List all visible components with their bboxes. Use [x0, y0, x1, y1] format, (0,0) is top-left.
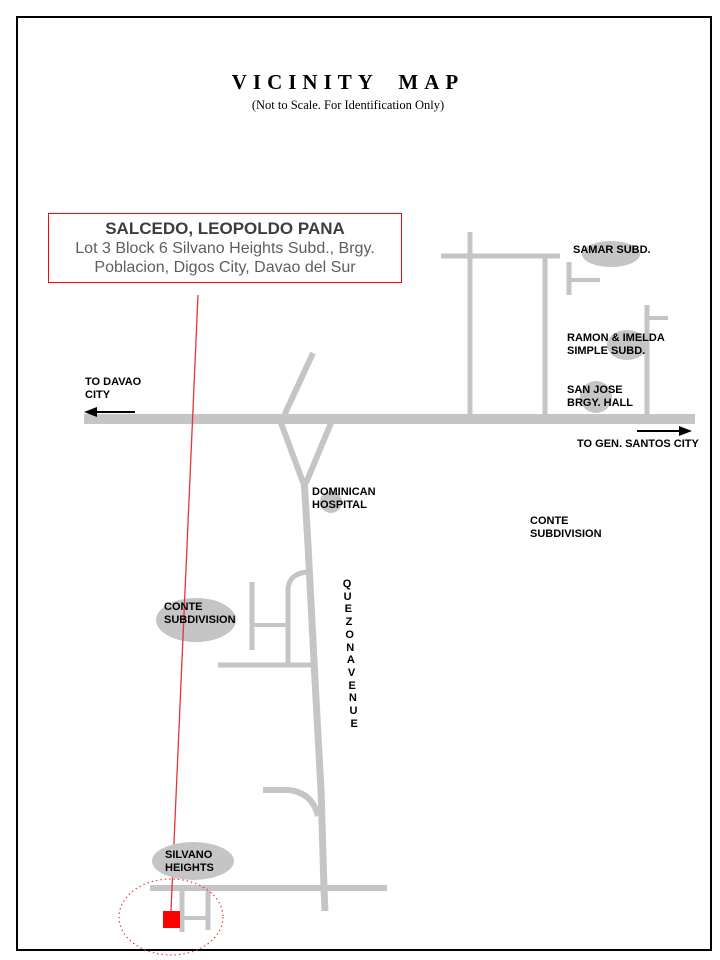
street-letter: Z — [346, 617, 353, 628]
label-to-davao-city: TO DAVAO CITY — [85, 376, 141, 401]
label-ramon-imelda: RAMON & IMELDA SIMPLE SUBD. — [567, 332, 665, 357]
address-line-1: Lot 3 Block 6 Silvano Heights Subd., Brg… — [49, 239, 401, 258]
street-letter: E — [345, 604, 352, 615]
street-letter: E — [349, 681, 356, 692]
road-diagonal — [283, 353, 313, 418]
road-fork-right — [306, 423, 331, 483]
label-to-gen-santos-city: TO GEN. SANTOS CITY — [577, 438, 699, 451]
street-letter: V — [348, 668, 355, 679]
to-davao-arrow-shaft — [95, 411, 135, 413]
label-line-1: TO DAVAO — [85, 376, 141, 389]
label-conte-subdivision-right: CONTE SUBDIVISION — [530, 515, 602, 540]
street-letter: A — [347, 655, 355, 666]
label-line-2: SUBDIVISION — [164, 614, 236, 627]
label-line-1: CONTE — [164, 601, 236, 614]
label-conte-subdivision-left: CONTE SUBDIVISION — [164, 601, 236, 626]
street-letter: U — [350, 706, 358, 717]
label-line-1: RAMON & IMELDA — [567, 332, 665, 345]
label-line-1: SAN JOSE — [567, 384, 633, 397]
owner-name: SALCEDO, LEOPOLDO PANA — [49, 214, 401, 239]
landmarks-layer — [156, 241, 647, 642]
map-canvas — [0, 0, 720, 960]
street-letter: O — [345, 630, 354, 641]
label-line-1: CONTE — [530, 515, 602, 528]
street-letter: Q — [343, 579, 352, 590]
street-letter: N — [346, 643, 354, 654]
label-silvano-heights: SILVANO HEIGHTS — [165, 849, 214, 874]
label-line-2: BRGY. HALL — [567, 397, 633, 410]
property-marker — [163, 911, 180, 928]
road-curve-branch — [263, 790, 318, 816]
label-line-2: HEIGHTS — [165, 862, 214, 875]
label-line-1: DOMINICAN — [312, 486, 376, 499]
street-letter: E — [350, 719, 357, 730]
to-gen-santos-arrow-head — [679, 426, 692, 436]
label-line-2: CITY — [85, 389, 141, 402]
address-line-2: Poblacion, Digos City, Davao del Sur — [49, 258, 401, 277]
road-quezon-avenue — [304, 478, 325, 911]
callout-box: SALCEDO, LEOPOLDO PANA Lot 3 Block 6 Sil… — [48, 213, 402, 283]
label-dominican-hospital: DOMINICAN HOSPITAL — [312, 486, 376, 511]
road-side-hook — [288, 572, 308, 664]
label-line-2: SUBDIVISION — [530, 528, 602, 541]
vicinity-map-page: VICINITY MAP (Not to Scale. For Identifi… — [0, 0, 720, 960]
label-san-jose-brgy-hall: SAN JOSE BRGY. HALL — [567, 384, 633, 409]
street-letter: U — [344, 592, 352, 603]
label-line-1: SILVANO — [165, 849, 214, 862]
label-line-2: SIMPLE SUBD. — [567, 345, 665, 358]
road-fork-left — [281, 423, 304, 485]
street-letter: N — [349, 693, 357, 704]
label-samar-subd: SAMAR SUBD. — [573, 244, 651, 257]
to-gen-santos-arrow-shaft — [637, 430, 681, 432]
label-line-2: HOSPITAL — [312, 499, 376, 512]
